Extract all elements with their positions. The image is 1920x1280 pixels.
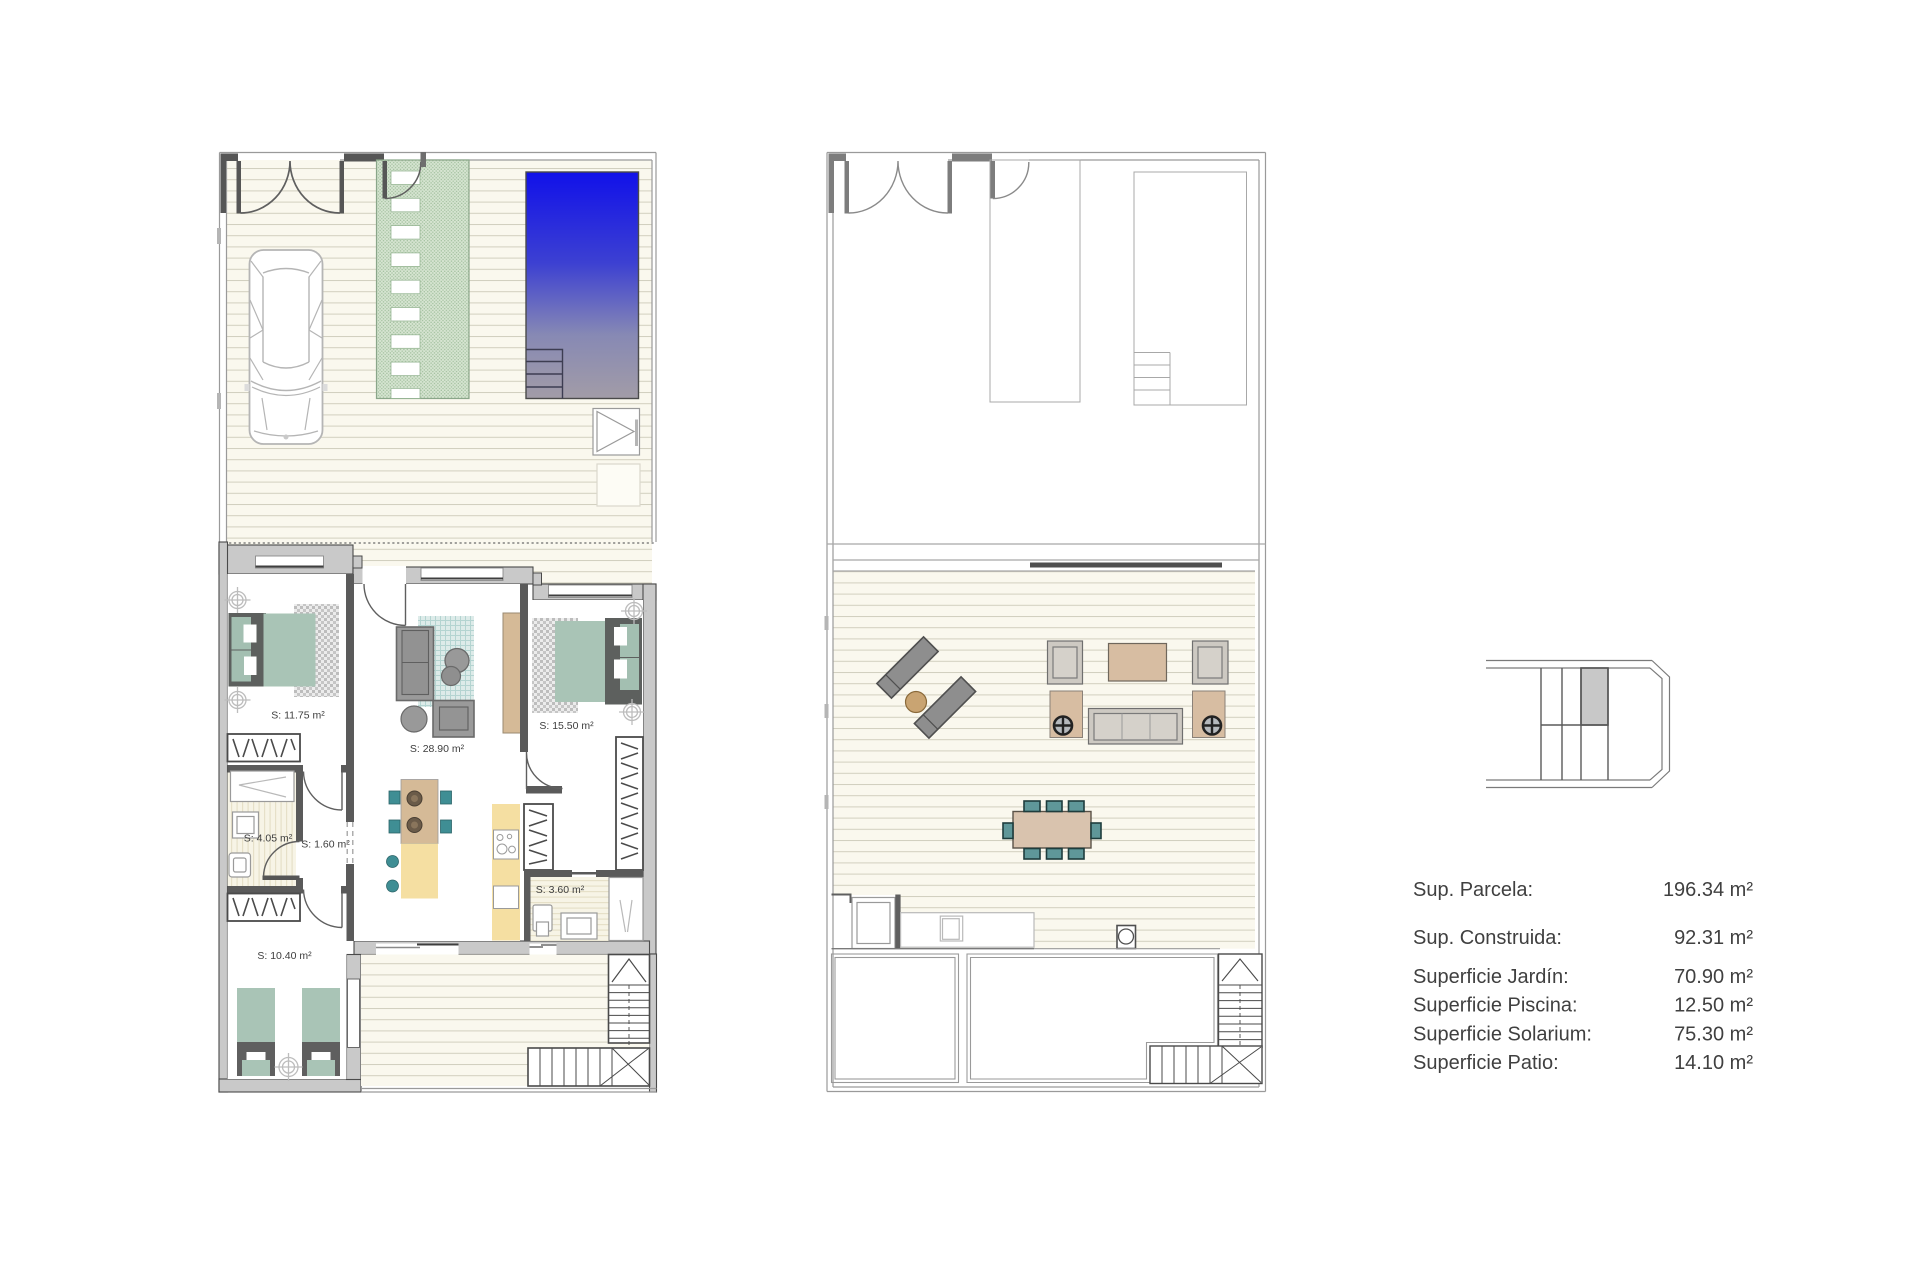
- svg-text:14.10 m²: 14.10 m²: [1674, 1052, 1753, 1074]
- svg-text:196.34 m²: 196.34 m²: [1663, 879, 1753, 901]
- svg-text:S: 3.60 m²: S: 3.60 m²: [536, 884, 585, 896]
- svg-text:Superficie Patio:: Superficie Patio:: [1413, 1052, 1559, 1074]
- svg-text:Superficie Solarium:: Superficie Solarium:: [1413, 1024, 1592, 1046]
- svg-text:Superficie Jardín:: Superficie Jardín:: [1413, 966, 1569, 988]
- svg-text:12.50 m²: 12.50 m²: [1674, 995, 1753, 1017]
- svg-text:S: 10.40 m²: S: 10.40 m²: [257, 950, 312, 962]
- svg-text:S: 11.75 m²: S: 11.75 m²: [271, 710, 325, 722]
- svg-text:S: 28.90 m²: S: 28.90 m²: [410, 743, 465, 755]
- svg-text:S: 15.50 m²: S: 15.50 m²: [539, 720, 594, 732]
- svg-text:70.90 m²: 70.90 m²: [1674, 966, 1753, 988]
- svg-text:75.30 m²: 75.30 m²: [1674, 1024, 1753, 1046]
- svg-text:Sup. Construida:: Sup. Construida:: [1413, 927, 1562, 949]
- svg-text:92.31 m²: 92.31 m²: [1674, 927, 1753, 949]
- svg-text:S: 4.05 m²: S: 4.05 m²: [244, 833, 293, 845]
- svg-text:S: 1.60 m²: S: 1.60 m²: [301, 839, 350, 851]
- svg-text:Superficie Piscina:: Superficie Piscina:: [1413, 995, 1578, 1017]
- svg-text:Sup. Parcela:: Sup. Parcela:: [1413, 879, 1533, 901]
